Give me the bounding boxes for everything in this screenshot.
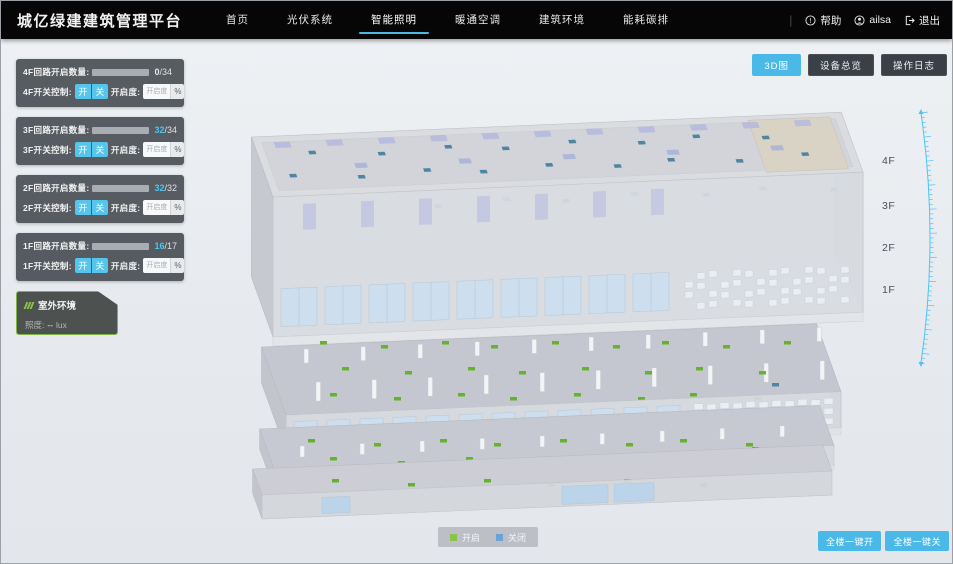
help-label: 帮助	[820, 13, 841, 28]
switch-on-button[interactable]: 开	[75, 258, 91, 273]
building-3d-view[interactable]	[216, 97, 896, 527]
circuit-count-label: 3F回路开启数量:	[23, 124, 89, 136]
circuit-progress-bar	[92, 185, 149, 192]
openness-input-group: %	[143, 200, 184, 215]
circuit-count-label: 4F回路开启数量:	[23, 66, 89, 78]
nav-tab[interactable]: 智能照明	[365, 7, 423, 34]
app-title: 城亿绿建建筑管理平台	[17, 10, 182, 31]
switch-segmented-control: 开 关	[75, 200, 108, 215]
help-icon: !	[805, 15, 816, 26]
switch-off-button[interactable]: 关	[92, 258, 108, 273]
floor-control-panels: 4F回路开启数量: 0/34 4F开关控制: 开 关 开启度: %	[16, 59, 184, 335]
floor-axis-label-2f[interactable]: 2F	[882, 242, 895, 254]
circuit-progress-bar	[92, 243, 149, 250]
openness-label: 开启度:	[111, 86, 141, 98]
outdoor-panel-title: 室外环境	[38, 298, 76, 312]
openness-input-group: %	[143, 258, 184, 273]
whole-building-controls: 全楼一键开全楼一键关	[818, 531, 949, 551]
svg-text:!: !	[810, 16, 813, 24]
floor-axis-label-1f[interactable]: 1F	[882, 284, 895, 296]
floor-panel: 4F回路开启数量: 0/34 4F开关控制: 开 关 开启度: %	[16, 59, 184, 107]
openness-input-group: %	[143, 84, 184, 99]
circuit-progress-bar	[92, 127, 149, 134]
openness-input[interactable]	[143, 142, 170, 157]
username: ailsa	[869, 14, 891, 26]
floor-axis-label-3f[interactable]: 3F	[882, 200, 895, 212]
legend-color-swatch	[450, 534, 457, 541]
help-button[interactable]: ! 帮助	[805, 13, 841, 28]
percent-apply-button[interactable]: %	[170, 142, 184, 157]
building-floor-4f	[251, 112, 869, 346]
openness-input[interactable]	[143, 84, 170, 99]
switch-off-button[interactable]: 关	[92, 84, 108, 99]
logout-icon	[904, 15, 915, 26]
logout-label: 退出	[919, 13, 940, 28]
nav-tab[interactable]: 建筑环境	[533, 7, 591, 34]
view-toolbar-button[interactable]: 3D图	[752, 54, 801, 76]
view-toolbar-button[interactable]: 操作日志	[881, 54, 947, 76]
top-nav-bar: 城亿绿建建筑管理平台 首页光伏系统智能照明暖通空调建筑环境能耗碳排 | ! 帮助…	[1, 1, 952, 39]
whole-building-button[interactable]: 全楼一键开	[818, 531, 882, 551]
switch-off-button[interactable]: 关	[92, 142, 108, 157]
floor-panel: 2F回路开启数量: 32/32 2F开关控制: 开 关 开启度: %	[16, 175, 184, 223]
openness-label: 开启度:	[111, 144, 141, 156]
illuminance-label: 照度:	[25, 320, 44, 330]
view-toolbar: 3D图设备总览操作日志	[752, 54, 947, 76]
openness-label: 开启度:	[111, 260, 141, 272]
legend-label: 开启	[462, 531, 480, 544]
circuit-count-label: 2F回路开启数量:	[23, 182, 89, 194]
floor-panel: 1F回路开启数量: 16/17 1F开关控制: 开 关 开启度: %	[16, 233, 184, 281]
percent-apply-button[interactable]: %	[170, 200, 184, 215]
main-area: 3D图设备总览操作日志 4F回路开启数量: 0/34 4F开关控制: 开 关	[1, 39, 953, 564]
circuit-progress-bar	[92, 69, 149, 76]
whole-building-button[interactable]: 全楼一键关	[885, 531, 949, 551]
nav-divider: |	[789, 13, 792, 27]
switch-on-button[interactable]: 开	[75, 200, 91, 215]
app-window: 城亿绿建建筑管理平台 首页光伏系统智能照明暖通空调建筑环境能耗碳排 | ! 帮助…	[0, 0, 953, 564]
view-toolbar-button[interactable]: 设备总览	[808, 54, 874, 76]
floor-ruler-scale[interactable]	[906, 105, 948, 371]
main-menu: 首页光伏系统智能照明暖通空调建筑环境能耗碳排	[220, 1, 675, 39]
legend-label: 关闭	[508, 531, 526, 544]
illuminance-unit: lux	[56, 320, 67, 330]
switch-on-button[interactable]: 开	[75, 84, 91, 99]
nav-right-group: | ! 帮助 ailsa	[789, 13, 940, 28]
circuit-count-label: 1F回路开启数量:	[23, 240, 89, 252]
switch-off-button[interactable]: 关	[92, 200, 108, 215]
percent-apply-button[interactable]: %	[170, 84, 184, 99]
percent-apply-button[interactable]: %	[170, 258, 184, 273]
switch-control-label: 1F开关控制:	[23, 260, 72, 272]
switch-control-label: 3F开关控制:	[23, 144, 72, 156]
illuminance-value: --	[47, 320, 53, 330]
outdoor-environment-panel: 室外环境照度:--lux	[16, 291, 118, 335]
user-menu[interactable]: ailsa	[854, 14, 891, 26]
switch-control-label: 4F开关控制:	[23, 86, 72, 98]
switch-on-button[interactable]: 开	[75, 142, 91, 157]
legend-color-swatch	[496, 534, 503, 541]
switch-segmented-control: 开 关	[75, 142, 108, 157]
nav-tab[interactable]: 暖通空调	[449, 7, 507, 34]
light-status-legend: 开启 关闭	[438, 527, 538, 547]
logout-button[interactable]: 退出	[904, 13, 940, 28]
legend-item: 关闭	[496, 531, 526, 544]
circuit-count-value: 0/34	[154, 67, 172, 77]
nav-tab[interactable]: 首页	[220, 7, 255, 34]
legend-item: 开启	[450, 531, 480, 544]
nav-tab[interactable]: 光伏系统	[281, 7, 339, 34]
circuit-count-value: 16/17	[154, 241, 177, 251]
switch-segmented-control: 开 关	[75, 84, 108, 99]
openness-input-group: %	[143, 142, 184, 157]
openness-label: 开启度:	[111, 202, 141, 214]
nav-tab[interactable]: 能耗碳排	[617, 7, 675, 34]
switch-control-label: 2F开关控制:	[23, 202, 72, 214]
floor-panel: 3F回路开启数量: 32/34 3F开关控制: 开 关 开启度: %	[16, 117, 184, 165]
circuit-count-value: 32/32	[154, 183, 177, 193]
circuit-count-value: 32/34	[154, 125, 177, 135]
openness-input[interactable]	[143, 258, 170, 273]
floor-axis-label-4f[interactable]: 4F	[882, 155, 895, 167]
switch-segmented-control: 开 关	[75, 258, 108, 273]
user-icon	[854, 15, 865, 26]
grass-icon	[25, 302, 33, 309]
openness-input[interactable]	[143, 200, 170, 215]
